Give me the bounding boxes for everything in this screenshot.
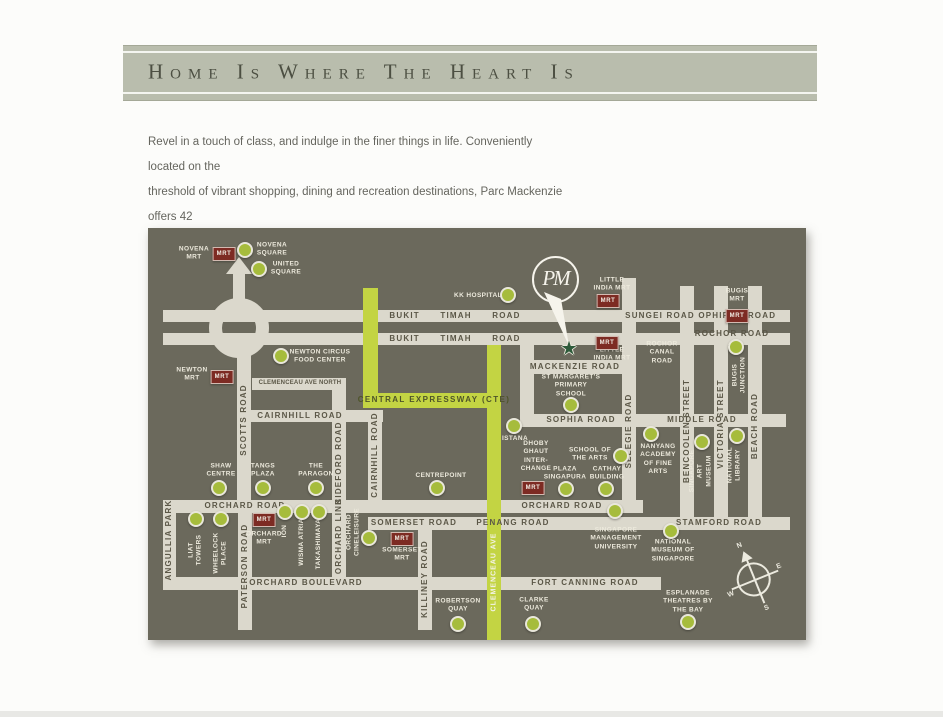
location-map: PM ★ N E S W BUKIT TIMAH ROADBUKIT TIMAH… — [148, 228, 806, 640]
label-orchard-mrt: ORCHARD MRT — [246, 531, 282, 548]
label-orchard-road: ORCHARD ROAD — [521, 501, 602, 511]
dot-school-of-the-arts — [613, 448, 629, 464]
dot-novena-square — [237, 242, 253, 258]
compass-n: N — [736, 542, 743, 550]
label-wheelock-place: WHEELOCK PLACE — [213, 532, 230, 573]
label-singapore-art-museum: SINGAPORE ART MUSEUM — [688, 450, 713, 493]
label-novena-mrt: NOVENA MRT — [179, 246, 209, 263]
label-plaza-singapura: PLAZA SINGAPURA — [544, 466, 587, 483]
label-ion: ION — [281, 525, 289, 538]
label-road: ROAD — [748, 311, 776, 321]
label-robertson-quay: ROBERTSON QUAY — [435, 598, 480, 615]
label-bukit-timah-road: BUKIT TIMAH ROAD — [389, 334, 520, 344]
label-bideford-road: BIDEFORD ROAD — [334, 421, 344, 504]
label-tangs-plaza: TANGS PLAZA — [251, 463, 275, 480]
label-little-india-mrt: LITTLE INDIA MRT — [594, 277, 631, 294]
dot-centrepoint — [429, 480, 445, 496]
label-novena-square: NOVENA SQUARE — [257, 242, 287, 259]
dot-shaw-centre — [211, 480, 227, 496]
dot-kk-hospital — [500, 287, 516, 303]
mrt-badge-orchard: MRT — [253, 513, 276, 527]
label-penang-road: PENANG ROAD — [476, 518, 549, 528]
banner-top-rule — [123, 51, 817, 53]
dot-nanyang-academy-of-fine-arts — [643, 426, 659, 442]
label-st-margaret-s-primary-school: ST MARGARET'S PRIMARY SCHOOL — [542, 373, 601, 398]
label-middle-road: MIDDLE ROAD — [667, 415, 737, 425]
label-cairnhill-road: CAIRNHILL ROAD — [257, 411, 343, 421]
dot-united-square — [251, 261, 267, 277]
compass-w: W — [727, 590, 736, 599]
dot-cathay-building — [598, 481, 614, 497]
compass-north-arrowhead-icon — [738, 549, 753, 563]
label-kk-hospital: KK HOSPITAL — [454, 292, 502, 300]
mrt-badge-dhoby-ghaut: MRT — [522, 481, 545, 495]
mrt-badge-bugis: MRT — [726, 309, 749, 323]
label-orchard-link: ORCHARD LINK — [334, 498, 344, 574]
label-cathay-building: CATHAY BUILDING — [590, 466, 625, 483]
label-centrepoint: CENTREPOINT — [416, 472, 467, 480]
label-school-of-the-arts: SCHOOL OF THE ARTS — [569, 447, 611, 464]
dot-ion — [277, 504, 293, 520]
site-star-icon: ★ — [560, 340, 577, 359]
label-scotts-road: SCOTTS ROAD — [239, 384, 249, 455]
label-national-museum-of-singapore: NATIONAL MUSEUM OF SINGAPORE — [651, 538, 694, 563]
label-takashimaya: TAKASHIMAYA — [315, 519, 323, 570]
dot-st-margarets-primary-school — [563, 397, 579, 413]
pm-monogram: PM — [542, 266, 568, 291]
label-sungei-road: SUNGEI ROAD — [625, 311, 695, 321]
label-orchard-cineleisure: ORCHARD CINELEISURE — [346, 508, 363, 556]
compass-s: S — [763, 604, 770, 612]
dot-the-paragon — [308, 480, 324, 496]
mrt-badge-newton: MRT — [211, 370, 234, 384]
dot-orchard-cineleisure — [361, 530, 377, 546]
label-beach-road: BEACH ROAD — [750, 393, 760, 459]
label-cairnhill-road: CAIRNHILL ROAD — [370, 412, 380, 498]
dot-newton-circus-food-center — [273, 348, 289, 364]
label-central-expressway-cte: CENTRAL EXPRESSWAY (CTE) — [358, 395, 511, 405]
label-clemenceau-ave-north: CLEMENCEAU AVE NORTH — [259, 380, 342, 388]
label-bugis-mrt: BUGIS MRT — [726, 288, 749, 305]
banner-bottom-rule — [123, 92, 817, 94]
dot-istana — [506, 418, 522, 434]
north-arrow-road-stem — [233, 273, 245, 303]
page-edge-strip — [0, 711, 943, 717]
dot-clarke-quay — [525, 616, 541, 632]
label-orchard-road: ORCHARD ROAD — [204, 501, 285, 511]
label-singapore-management-university: SINGAPORE MANAGEMENT UNIVERSITY — [590, 526, 641, 551]
dot-esplanade-theatres-by-the-bay — [680, 614, 696, 630]
dot-liat-towers — [188, 511, 204, 527]
newton-circus-roundabout — [209, 298, 269, 358]
dot-plaza-singapura — [558, 481, 574, 497]
dot-takashimaya — [311, 504, 327, 520]
compass-rose-icon: N E S W — [725, 550, 785, 610]
label-shaw-centre: SHAW CENTRE — [206, 463, 235, 480]
dot-national-museum-of-singapore — [663, 523, 679, 539]
label-nanyang-academy-of-fine-arts: NANYANG ACADEMY OF FINE ARTS — [640, 443, 676, 477]
label-bugis-junction: BUGIS JUNCTION — [732, 357, 749, 393]
label-rochor-road: ROCHOR ROAD — [695, 329, 770, 339]
label-esplanade-theatres-by-the-bay: ESPLANADE THEATRES BY THE BAY — [663, 589, 713, 614]
label-the-paragon: THE PARAGON — [298, 463, 334, 480]
dot-robertson-quay — [450, 616, 466, 632]
label-clemenceau-ave: CLEMENCEAU AVE — [489, 533, 498, 612]
parc-mackenzie-logo: PM — [532, 256, 579, 303]
label-fort-canning-road: FORT CANNING ROAD — [531, 578, 639, 588]
title-banner: Home Is Where The Heart Is — [123, 45, 817, 101]
label-united-square: UNITED SQUARE — [271, 261, 301, 278]
dot-wheelock-place — [213, 511, 229, 527]
label-wisma-atria: WISMA ATRIA — [298, 518, 306, 566]
label-bukit-timah-road: BUKIT TIMAH ROAD — [389, 311, 520, 321]
dot-singapore-management-university — [607, 503, 623, 519]
mrt-badge-little-india-bottom: MRT — [596, 336, 619, 350]
label-newton-mrt: NEWTON MRT — [176, 367, 207, 384]
label-liat-towers: LIAT TOWERS — [188, 535, 205, 566]
mrt-badge-novena: MRT — [213, 247, 236, 261]
mrt-badge-little-india-top: MRT — [597, 294, 620, 308]
mrt-badge-somerset: MRT — [391, 532, 414, 546]
label-clarke-quay: CLARKE QUAY — [519, 597, 548, 614]
label-somerset-road: SOMERSET ROAD — [371, 518, 457, 528]
label-newton-circus-food-center: NEWTON CIRCUS FOOD CENTER — [290, 349, 351, 366]
label-orchard-boulevard: ORCHARD BOULEVARD — [249, 578, 363, 588]
page-title: Home Is Where The Heart Is — [148, 60, 580, 85]
label-victoria-street: VICTORIA STREET — [716, 379, 726, 469]
dot-singapore-art-museum — [694, 434, 710, 450]
label-national-library: NATIONAL LIBRARY — [727, 447, 744, 483]
road-central-expressway-vertical — [363, 288, 378, 408]
label-sophia-road: SOPHIA ROAD — [546, 415, 615, 425]
label-somerset-mrt: SOMERSET MRT — [382, 547, 422, 564]
label-rochor-canal-road: ROCHOR CANAL ROAD — [646, 340, 677, 365]
dot-tangs-plaza — [255, 480, 271, 496]
label-angullia-park: ANGULLIA PARK — [164, 500, 174, 581]
dot-bugis-junction — [728, 339, 744, 355]
dot-national-library — [729, 428, 745, 444]
label-stamford-road: STAMFORD ROAD — [676, 518, 762, 528]
dot-wisma-atria — [294, 504, 310, 520]
